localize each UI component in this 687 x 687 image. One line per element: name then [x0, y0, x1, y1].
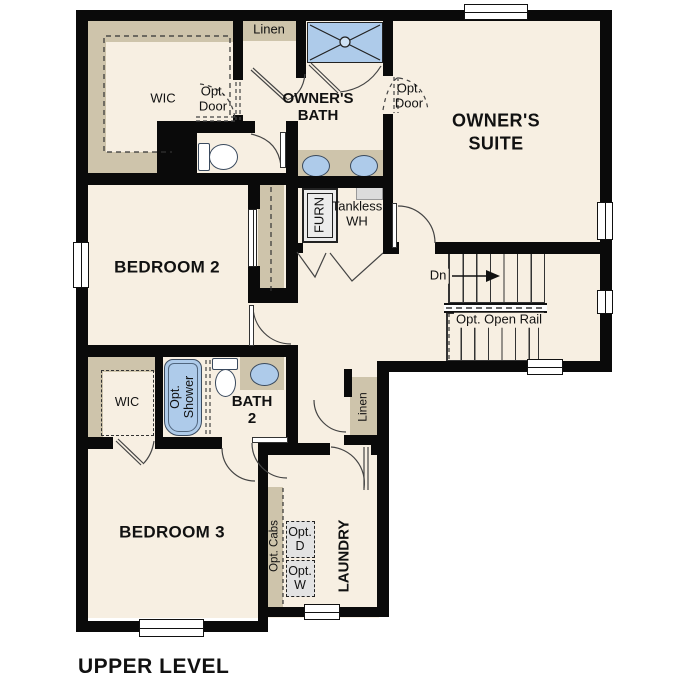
label-stairs-down: Dn: [428, 269, 449, 284]
label-opt-door-suite: Opt. Door: [395, 81, 423, 110]
room-label-wic-lower: WIC: [115, 395, 139, 409]
label-opt-washer: Opt. W: [288, 564, 312, 592]
room-label-owners-suite: OWNER'S SUITE: [452, 110, 540, 155]
room-label-bath2: BATH 2: [232, 394, 273, 428]
label-opt-shower: Opt. Shower: [168, 376, 196, 418]
closet-bypass-doors: [248, 209, 257, 267]
door-leaf-bath2: [252, 437, 288, 443]
label-opt-cabs: Opt. Cabs: [269, 520, 282, 572]
door-leaf-toilet-room: [280, 132, 286, 168]
room-label-wic-upper: WIC: [150, 92, 175, 107]
room-label-linen-lower: Linen: [356, 392, 369, 421]
floor-plan: WIC Opt. Door Linen OWNER'S BATH Opt. Do…: [0, 0, 687, 687]
room-label-laundry: LAUNDRY: [337, 520, 354, 593]
room-label-bedroom3: BEDROOM 3: [119, 522, 225, 541]
label-opt-open-rail: Opt. Open Rail: [454, 313, 544, 328]
label-furnace: FURN: [313, 197, 328, 233]
room-label-bedroom2: BEDROOM 2: [114, 257, 220, 276]
label-opt-dryer: Opt. D: [288, 525, 312, 553]
room-label-owners-bath: OWNER'S BATH: [282, 91, 353, 125]
room-label-linen-upper: Linen: [253, 23, 285, 38]
door-leaf-bedroom2: [249, 305, 254, 346]
label-tankless-wh: Tankless WH: [332, 199, 383, 228]
stairs-direction-arrow-icon: [486, 270, 500, 282]
plan-title: UPPER LEVEL: [78, 655, 229, 679]
label-opt-door-wic: Opt. Door: [199, 84, 227, 113]
door-leaf-owners-suite: [392, 203, 397, 248]
